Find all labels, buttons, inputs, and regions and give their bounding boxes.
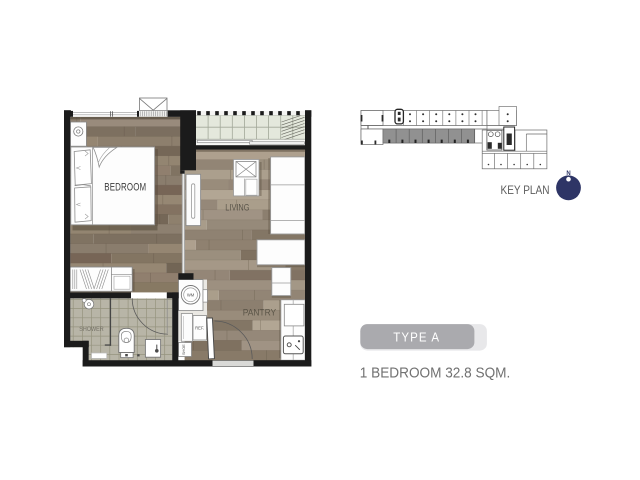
svg-text:SHOE: SHOE (182, 344, 186, 355)
svg-text:KEY PLAN: KEY PLAN (501, 183, 550, 197)
svg-text:PANTRY: PANTRY (243, 308, 277, 319)
svg-text:REF.: REF. (195, 325, 204, 330)
svg-text:WM: WM (187, 293, 195, 298)
svg-text:TYPE A: TYPE A (393, 331, 440, 345)
svg-text:1 BEDROOM 32.8 SQM.: 1 BEDROOM 32.8 SQM. (360, 364, 511, 381)
svg-text:LIVING: LIVING (225, 203, 249, 214)
svg-text:BEDROOM: BEDROOM (104, 182, 146, 194)
svg-text:SHOWER: SHOWER (79, 326, 104, 333)
